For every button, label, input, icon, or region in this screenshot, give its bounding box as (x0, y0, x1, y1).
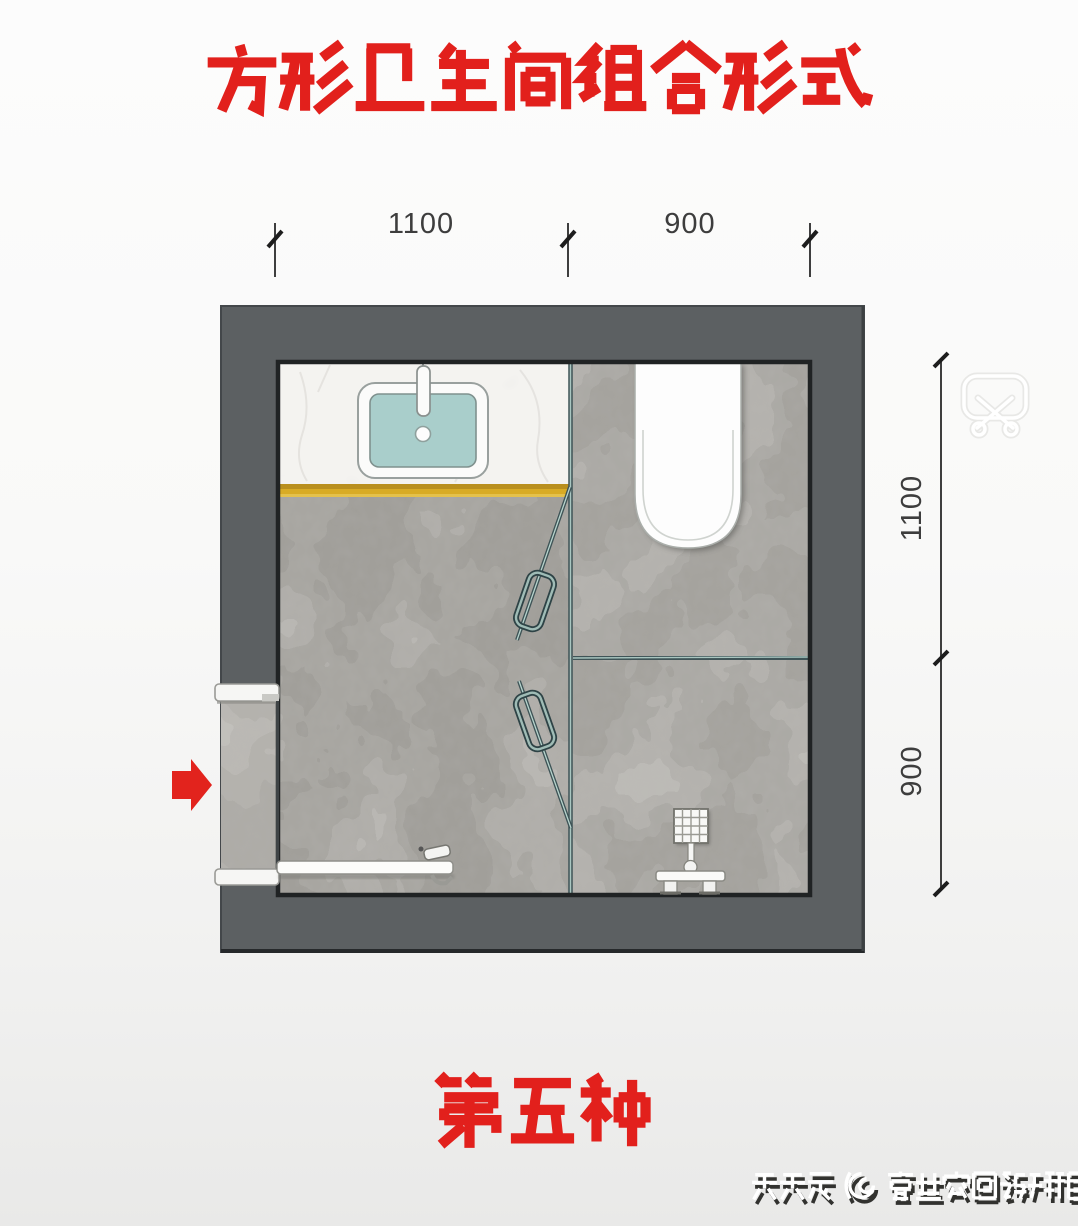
svg-text:1100: 1100 (896, 475, 928, 541)
svg-text:1100: 1100 (388, 208, 454, 240)
svg-text:900: 900 (896, 745, 928, 796)
svg-text:900: 900 (664, 208, 715, 240)
